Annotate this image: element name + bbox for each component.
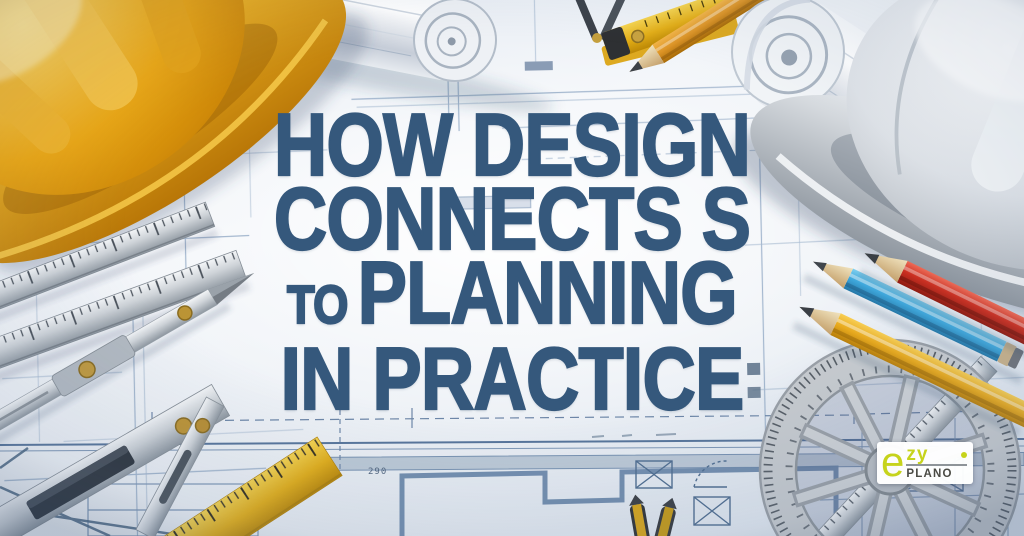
- title-line-3-word: PLANNING: [358, 243, 737, 342]
- logo-right-block: zy PLANO: [906, 447, 967, 480]
- brand-logo: e zy PLANO: [877, 442, 973, 484]
- title-line-4: IN PRACTICE: [274, 342, 750, 416]
- dim-label-290: 290: [368, 467, 387, 477]
- tiny-dim-marks: [592, 434, 676, 437]
- logo-letter-e: e: [881, 446, 904, 478]
- marker-tool-bottom: [627, 493, 679, 536]
- logo-underline: [906, 464, 967, 466]
- logo-wordmark: PLANO: [906, 468, 967, 480]
- title-line-3-small-word: TO: [287, 275, 347, 335]
- page-title: HOW DESIGN CONNECTS S TOPLANNING IN PRAC…: [274, 108, 750, 416]
- banner: 290: [0, 0, 1024, 536]
- logo-dot: [961, 452, 967, 458]
- logo-zy-text: zy: [906, 447, 928, 463]
